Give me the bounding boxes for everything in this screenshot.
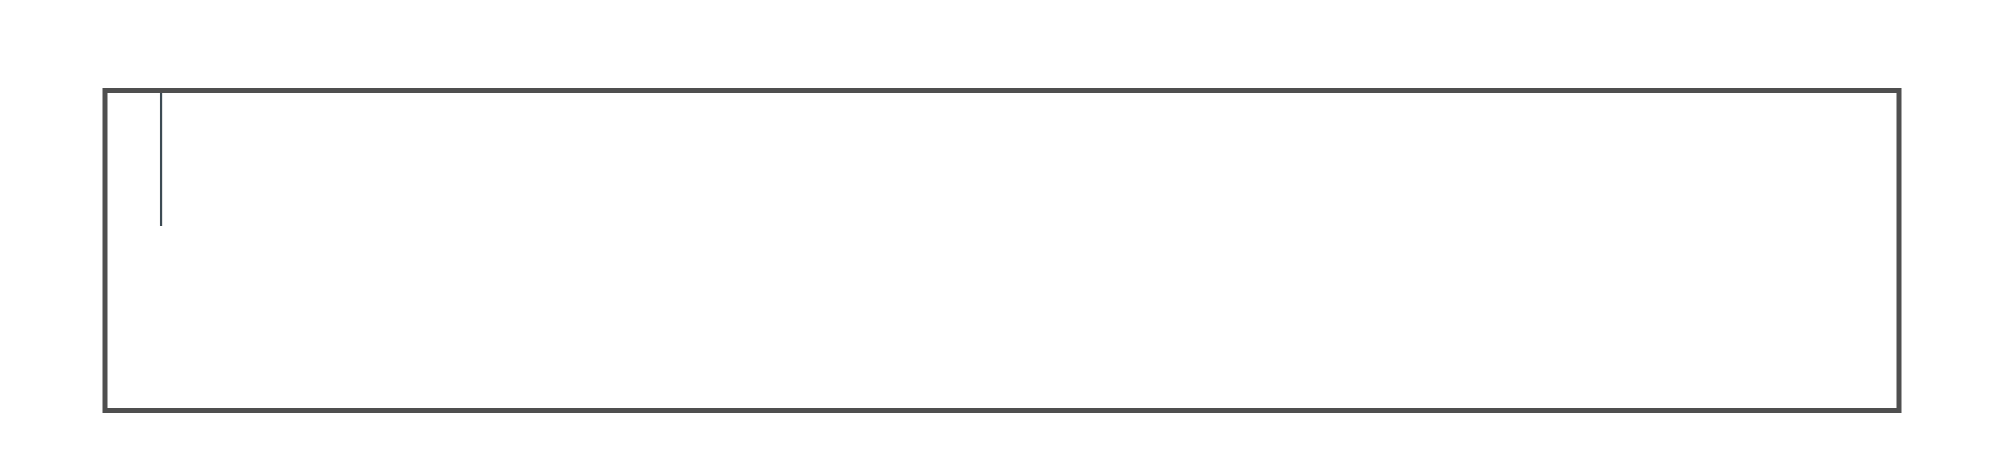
floor-plan	[0, 0, 2000, 474]
canvas-background	[0, 0, 2000, 474]
floor-plan-drawing	[0, 0, 2000, 474]
